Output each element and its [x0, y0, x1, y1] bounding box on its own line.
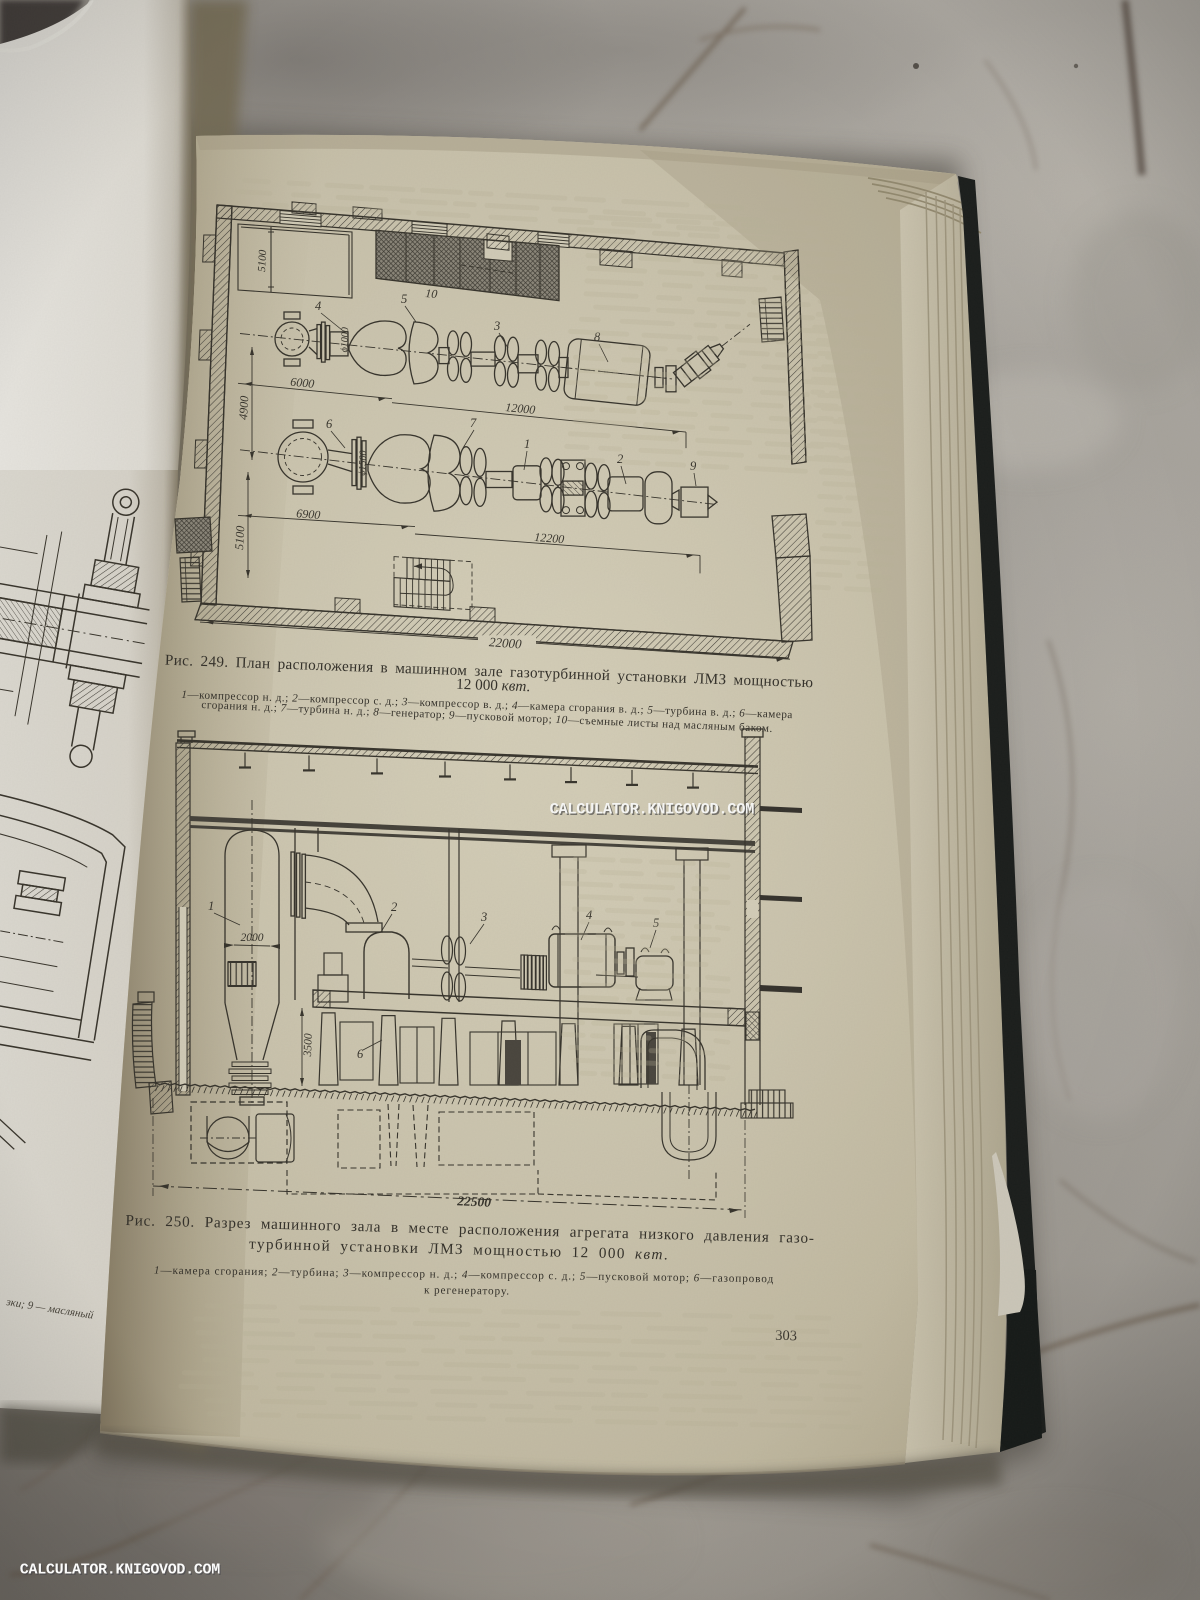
svg-text:CALCULATOR.KNIGOVOD.COM: CALCULATOR.KNIGOVOD.COM	[20, 1562, 220, 1579]
svg-text:CALCULATOR.KNIGOVOD.COM: CALCULATOR.KNIGOVOD.COM	[550, 801, 754, 819]
